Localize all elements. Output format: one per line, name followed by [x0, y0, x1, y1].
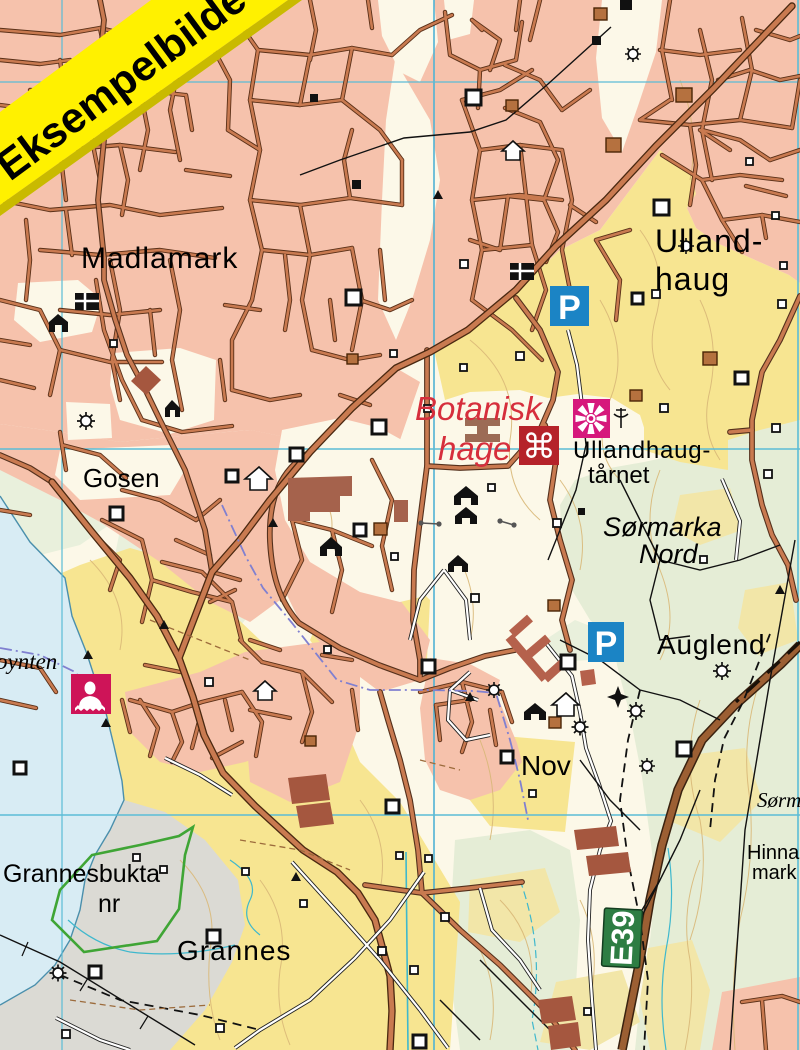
svg-text:Madlamark: Madlamark [81, 242, 238, 275]
svg-text:hage: hage [438, 430, 511, 467]
svg-text:E39: E39 [604, 910, 642, 967]
svg-text:P: P [595, 625, 618, 663]
svg-text:nr: nr [98, 890, 120, 918]
svg-text:haug: haug [655, 261, 730, 297]
svg-text:mark: mark [752, 862, 797, 884]
svg-text:P: P [558, 289, 581, 327]
svg-text:Ulland-: Ulland- [655, 223, 763, 259]
svg-text:Auglend: Auglend [657, 629, 765, 660]
svg-text:Ullandhaug-: Ullandhaug- [573, 437, 711, 464]
svg-text:Botanisk: Botanisk [415, 390, 543, 427]
svg-text:Hinna-: Hinna- [747, 842, 800, 864]
svg-text:tårnet: tårnet [588, 462, 650, 489]
svg-text:Grannesbukta: Grannesbukta [3, 860, 160, 888]
svg-text:Nord: Nord [639, 539, 699, 569]
svg-text:Sørmarka: Sørmarka [603, 512, 722, 542]
svg-text:Gosen: Gosen [83, 463, 160, 493]
svg-text:Nov: Nov [521, 750, 571, 781]
svg-text:Sørm: Sørm [757, 788, 800, 812]
svg-text:Grannes: Grannes [177, 935, 291, 966]
svg-text:oynten: oynten [0, 649, 57, 674]
svg-text:⌘: ⌘ [522, 428, 556, 466]
